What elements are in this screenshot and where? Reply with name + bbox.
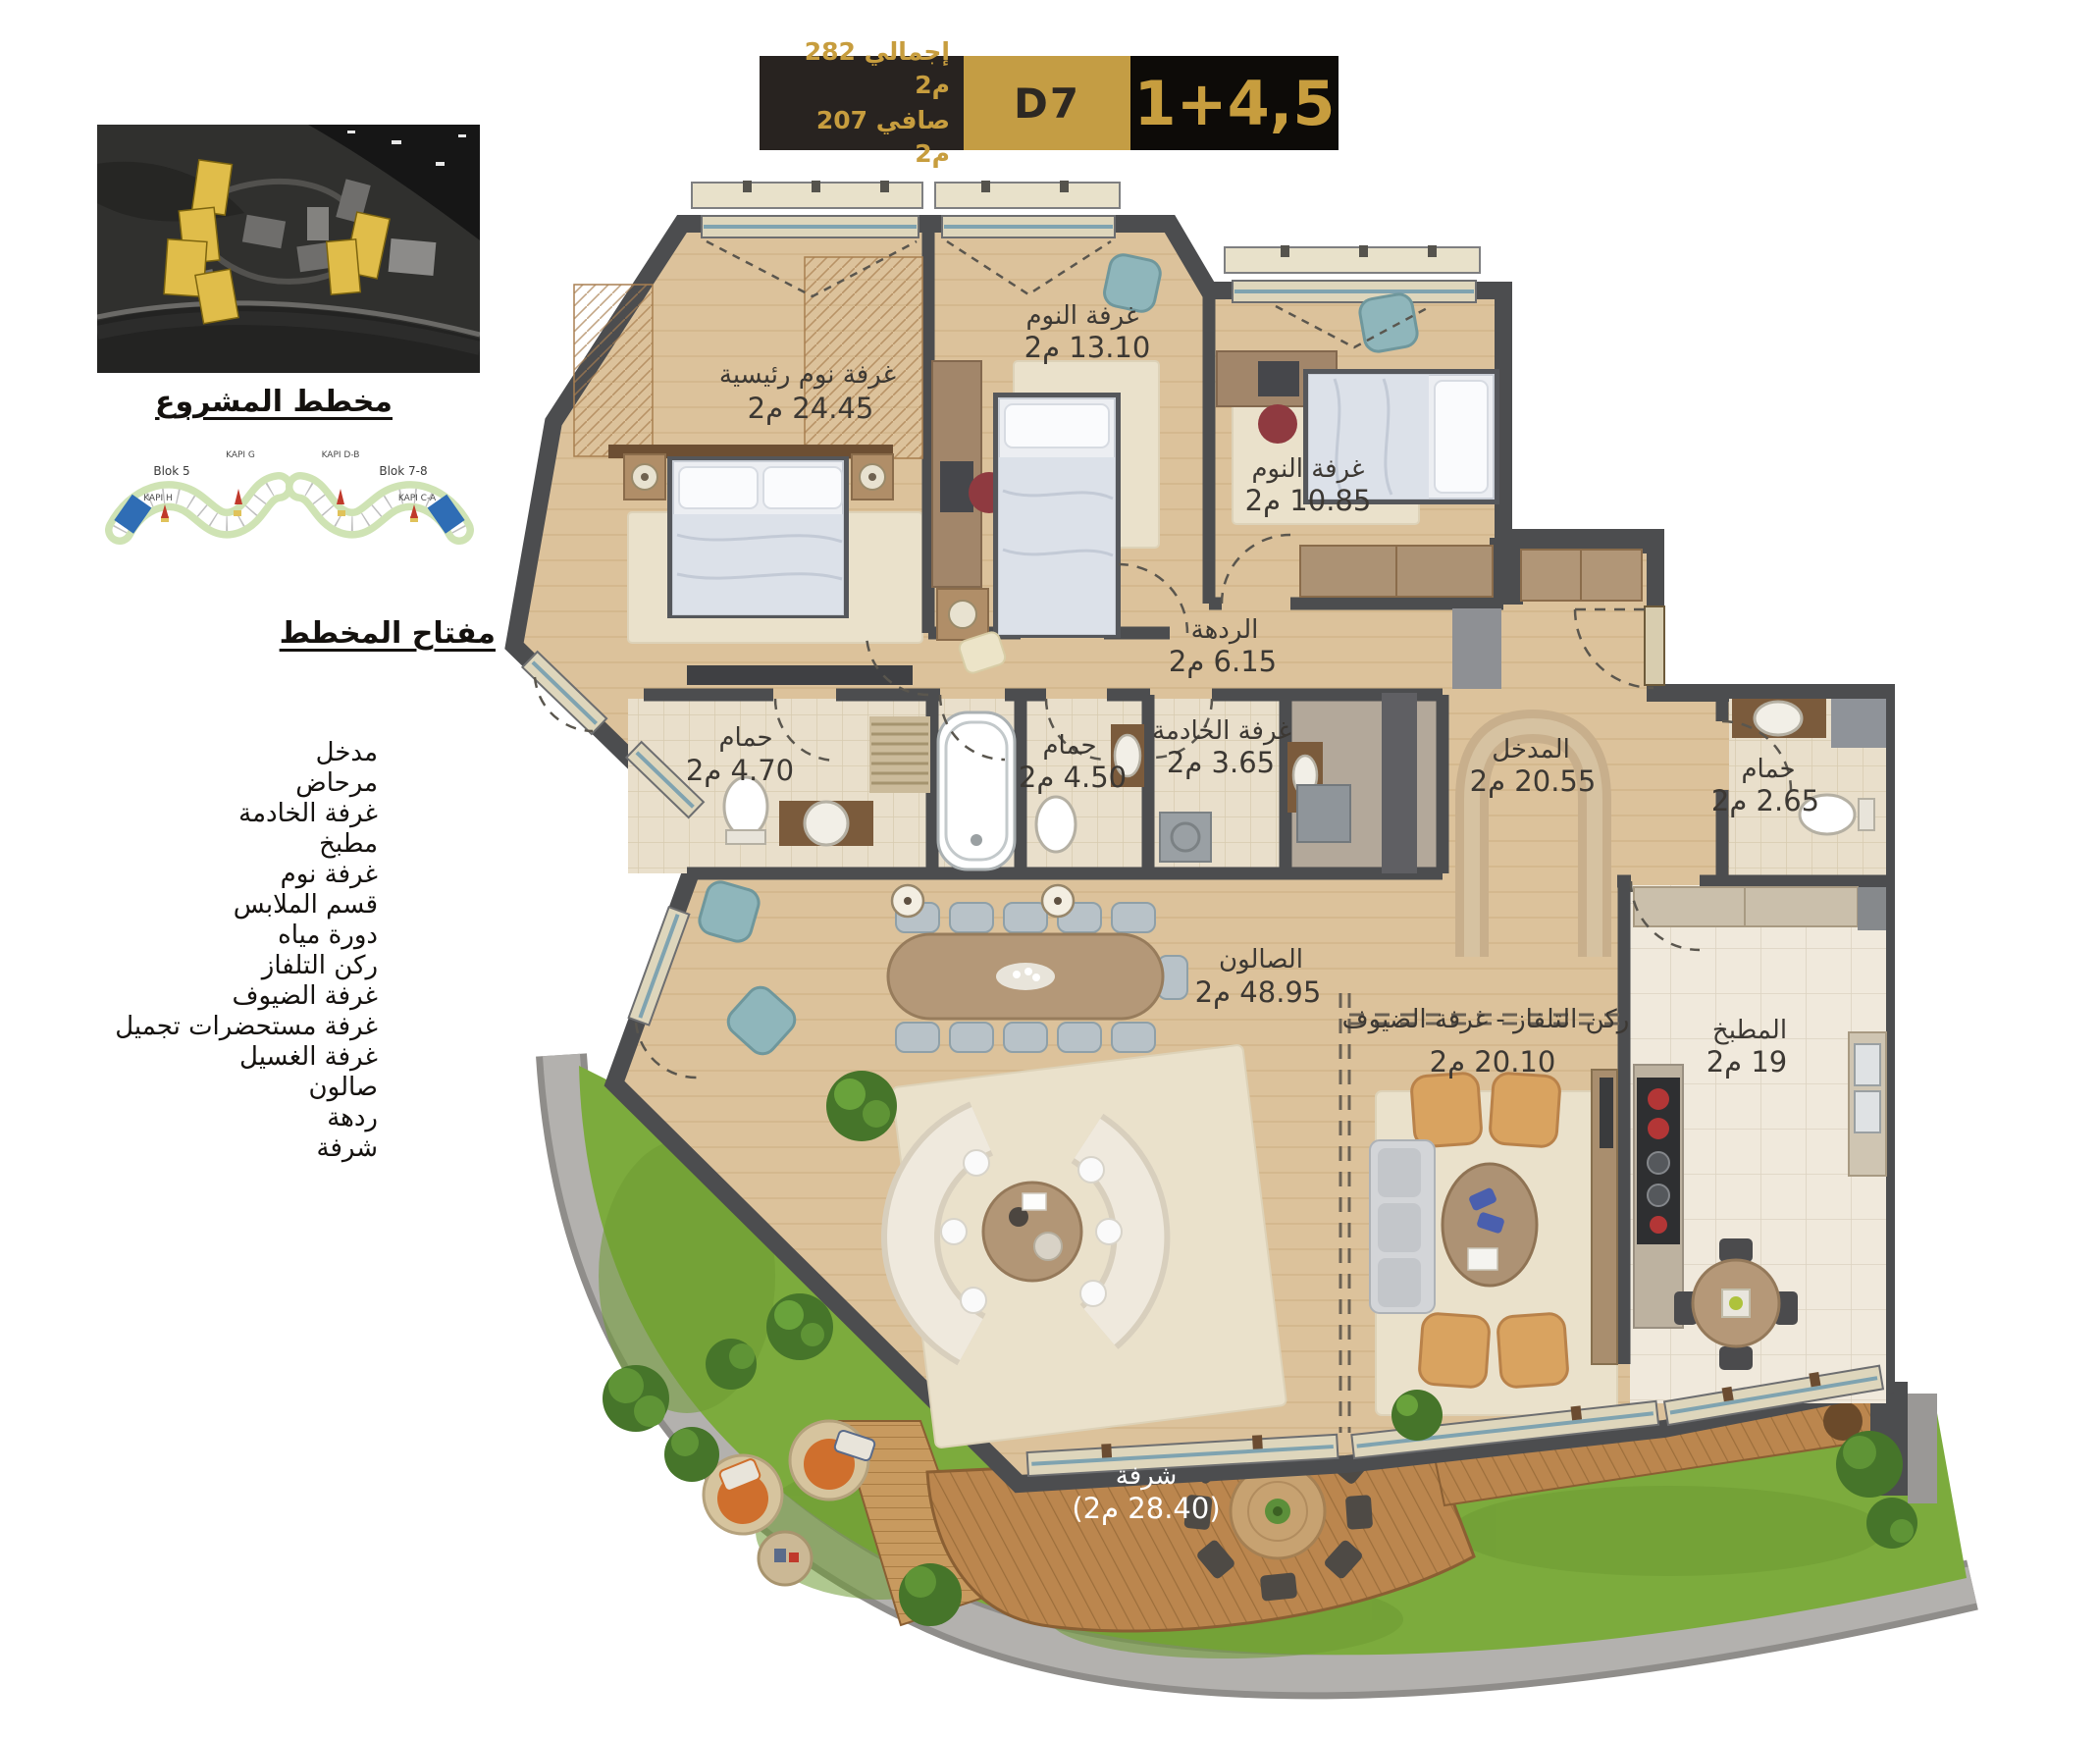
laptop [1258,361,1299,396]
dryer [1297,785,1350,842]
tv [1600,1078,1613,1148]
room-area-bedroom2: 13.10 م2 [1024,331,1151,364]
sink [1855,1091,1880,1132]
window-band-master [692,181,922,237]
room-label-entrance: المدخل [1492,735,1570,764]
room-area-entrance: 20.55 م2 [1470,764,1597,798]
guest-coffee-table [1443,1164,1537,1286]
room-area-master-bedroom: 24.45 م2 [748,392,874,425]
nightstand [624,454,665,500]
room-label-bathroom3: حمام [1741,755,1795,784]
room-label-bathroom1: حمام [718,723,772,753]
room-label-bedroom3: غرفة النوم [1251,454,1364,484]
floor-plan-page: { "header": { "total_area": "إجمالي 282 … [0,0,2100,1737]
entry-cabinet [1452,608,1501,689]
room-label-master-bedroom: غرفة نوم رئيسية [719,360,896,390]
armchair-teal [1358,292,1420,354]
sink [1855,1044,1880,1085]
closet-hatch [805,257,922,458]
window-band-bedroom2 [935,181,1120,237]
room-label-kitchen: المطبخ [1712,1016,1787,1045]
room-area-maid-room: 3.65 م2 [1167,746,1275,779]
plant [1391,1390,1443,1441]
room-area-salon: 48.95 م2 [1195,975,1322,1009]
floor-plan-drawing: غرفة نوم رئيسية 24.45 م2 غرفة النوم 13.1… [0,0,2100,1737]
window-band-bedroom3 [1225,245,1480,302]
shower-tray [1831,699,1886,748]
stove [1637,1078,1680,1244]
sink [805,802,848,845]
room-area-bathroom1: 4.70 م2 [686,754,794,787]
room-area-kitchen: 19 م2 [1706,1045,1788,1079]
sink [1755,702,1802,735]
room-area-balcony: (28.40 م2) [1072,1492,1220,1525]
single-bed [993,393,1121,638]
room-label-balcony: شرفة [1116,1461,1178,1491]
guest-sofa [1370,1140,1435,1313]
laptop [940,461,973,512]
nightstand [852,454,893,500]
main-entrance-door [1645,606,1664,685]
room-label-hallway: الردهة [1191,615,1259,645]
room-area-bathroom2: 4.50 م2 [1019,761,1127,794]
room-label-bedroom2: غرفة النوم [1025,301,1138,331]
room-area-tv-guest: 20.10 م2 [1430,1045,1556,1079]
room-label-bathroom2: حمام [1042,731,1096,761]
room-area-hallway: 6.15 م2 [1169,645,1277,678]
washing-machine [1160,813,1211,862]
room-label-tv-guest: ركن التلفاز - غرفة الضيوف [1342,1005,1630,1034]
toilet [1036,797,1076,852]
nightstand [937,589,988,640]
desk-chair [1258,404,1297,444]
room-label-maid-room: غرفة الخادمة [1152,716,1291,746]
closet-hatch [574,285,653,456]
room-label-salon: الصالون [1219,945,1303,974]
bathtub [938,712,1015,869]
double-bed [667,456,849,618]
dresser [687,665,913,685]
dining-set [888,903,1187,1052]
room-area-bedroom3: 10.85 م2 [1245,484,1372,517]
room-area-bathroom3: 2.65 م2 [1711,784,1819,817]
utility-cabinet [1382,693,1417,873]
shower-mat [869,716,930,793]
fridge [1858,887,1886,930]
fin-shadow [1908,1394,1937,1503]
